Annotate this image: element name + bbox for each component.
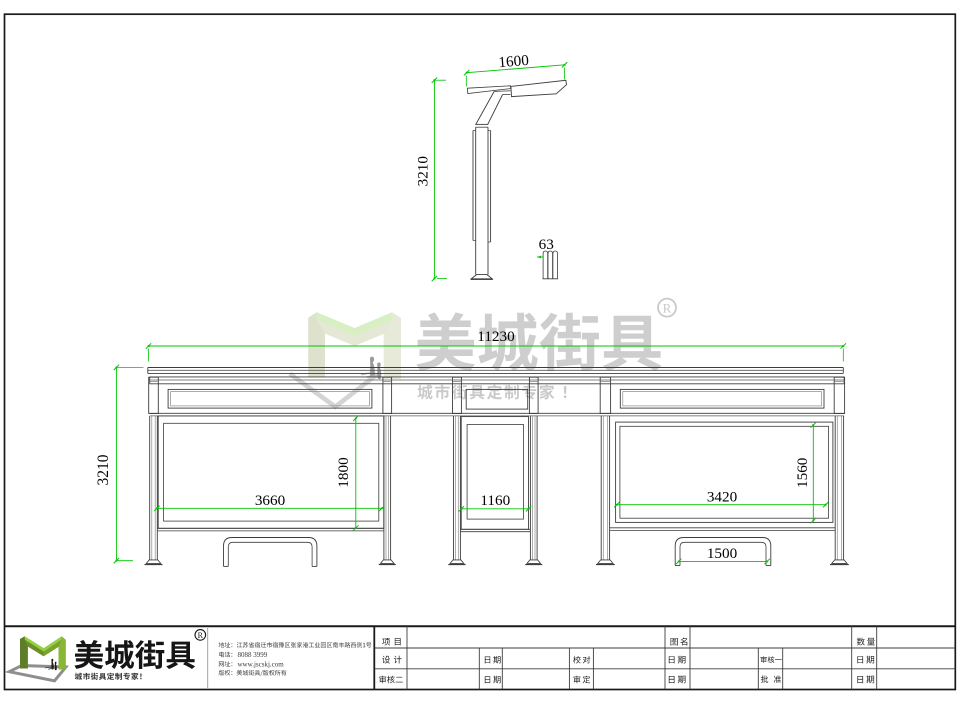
svg-text:1600: 1600 [498, 52, 530, 71]
svg-text:3210: 3210 [95, 454, 112, 485]
svg-text:1800: 1800 [335, 457, 352, 488]
svg-text:3660: 3660 [255, 492, 286, 509]
svg-text:11230: 11230 [477, 328, 515, 345]
svg-text:1500: 1500 [707, 545, 738, 562]
svg-text:R: R [663, 301, 672, 316]
svg-text:8088 3999: 8088 3999 [238, 651, 268, 659]
svg-text:63: 63 [539, 236, 554, 253]
svg-text:3420: 3420 [707, 488, 738, 505]
svg-text:1160: 1160 [480, 492, 510, 509]
svg-text:www.jscskj.com: www.jscskj.com [238, 660, 285, 668]
svg-text:3210: 3210 [415, 156, 432, 187]
svg-text:R: R [198, 631, 204, 640]
svg-text:1560: 1560 [794, 457, 811, 488]
